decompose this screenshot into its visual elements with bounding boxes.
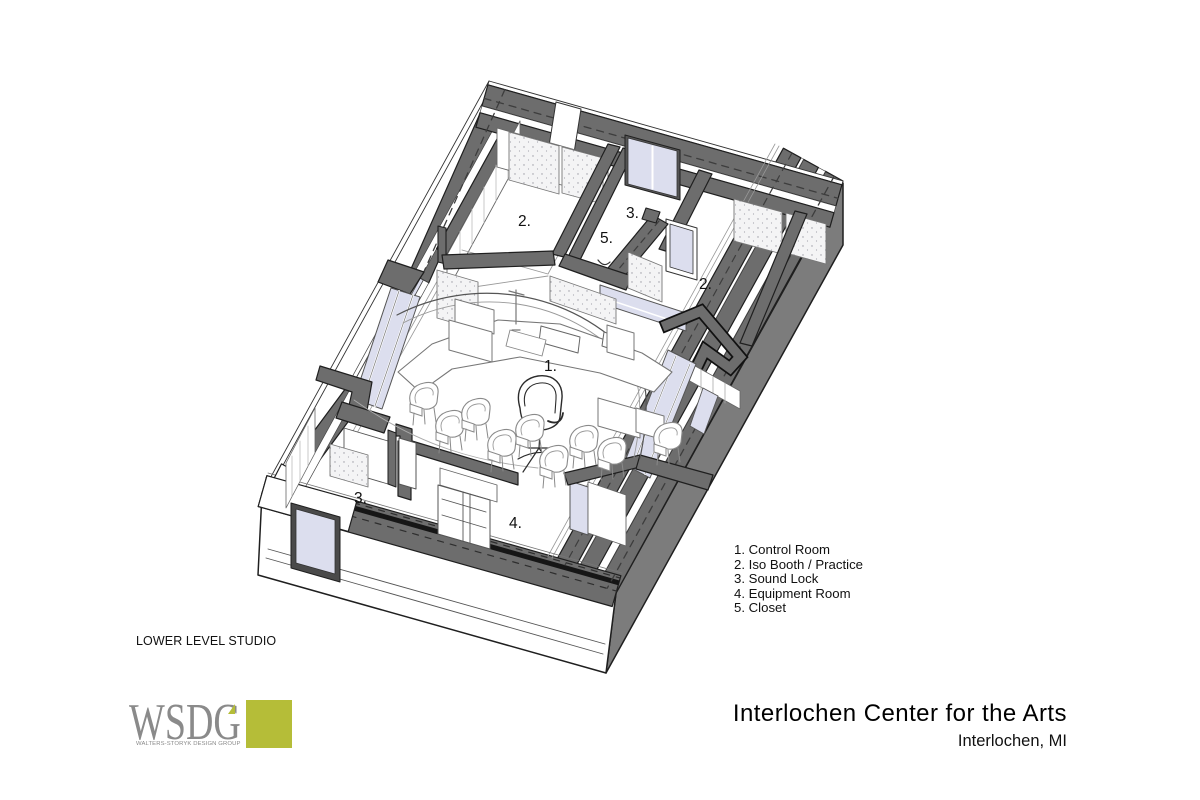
svg-text:1.: 1.	[544, 358, 557, 375]
svg-text:2.: 2.	[699, 276, 712, 293]
svg-text:2.: 2.	[518, 213, 531, 230]
svg-text:5.: 5.	[600, 230, 613, 247]
svg-text:4.: 4.	[509, 515, 522, 532]
svg-text:3.: 3.	[626, 205, 639, 222]
svg-text:3.: 3.	[354, 490, 367, 507]
